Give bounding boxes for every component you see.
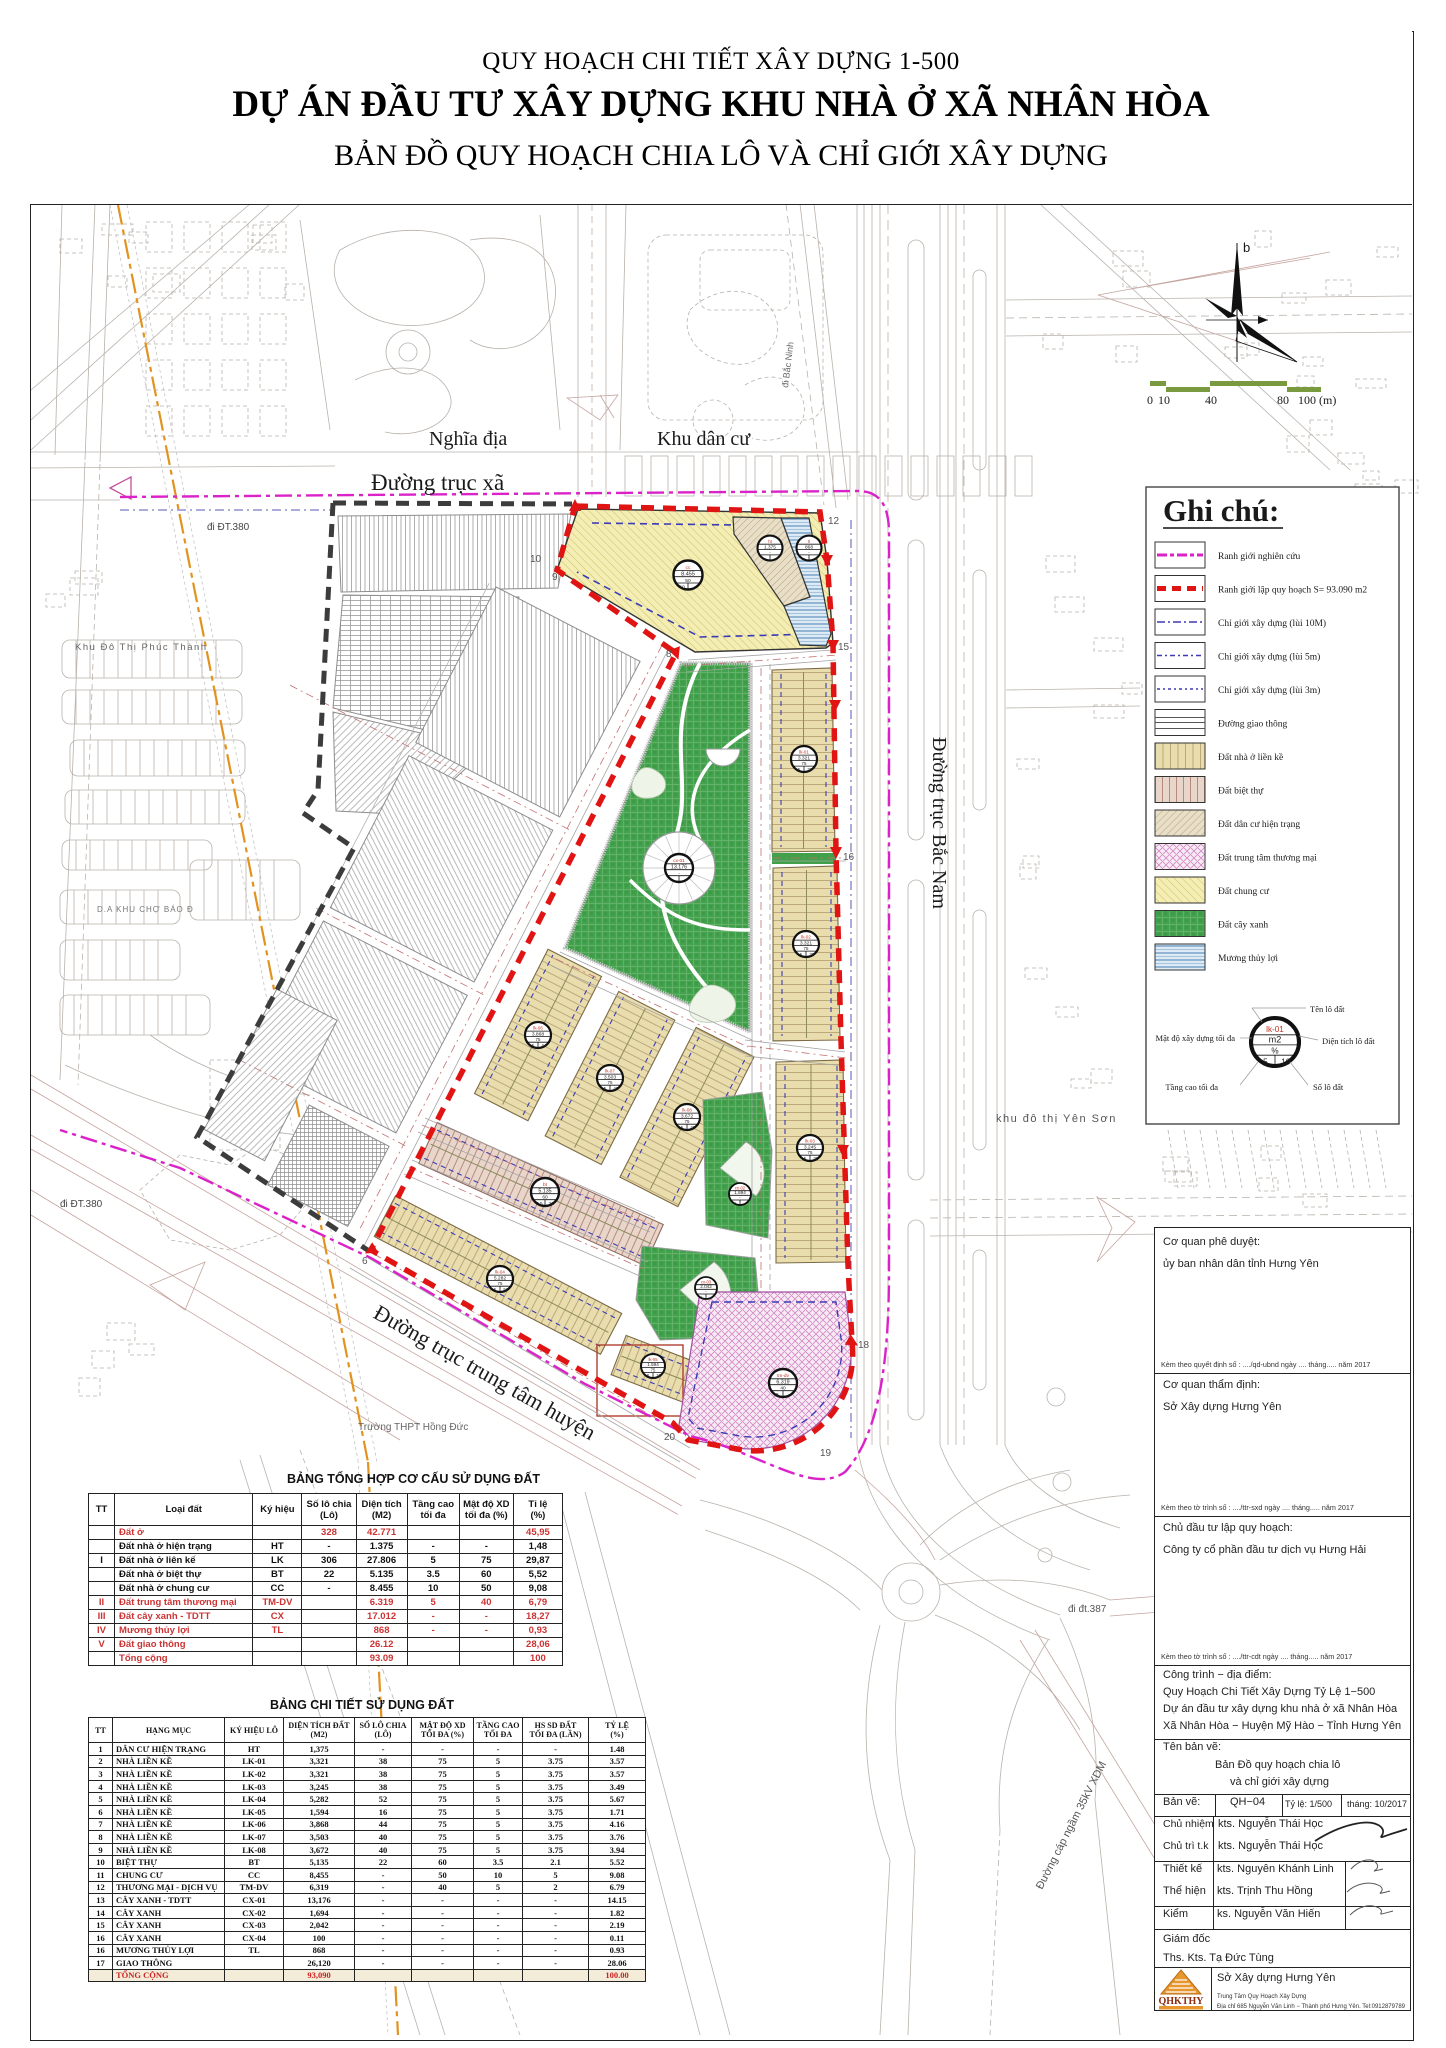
- svg-text:QHKTHY: QHKTHY: [1158, 1996, 1204, 2007]
